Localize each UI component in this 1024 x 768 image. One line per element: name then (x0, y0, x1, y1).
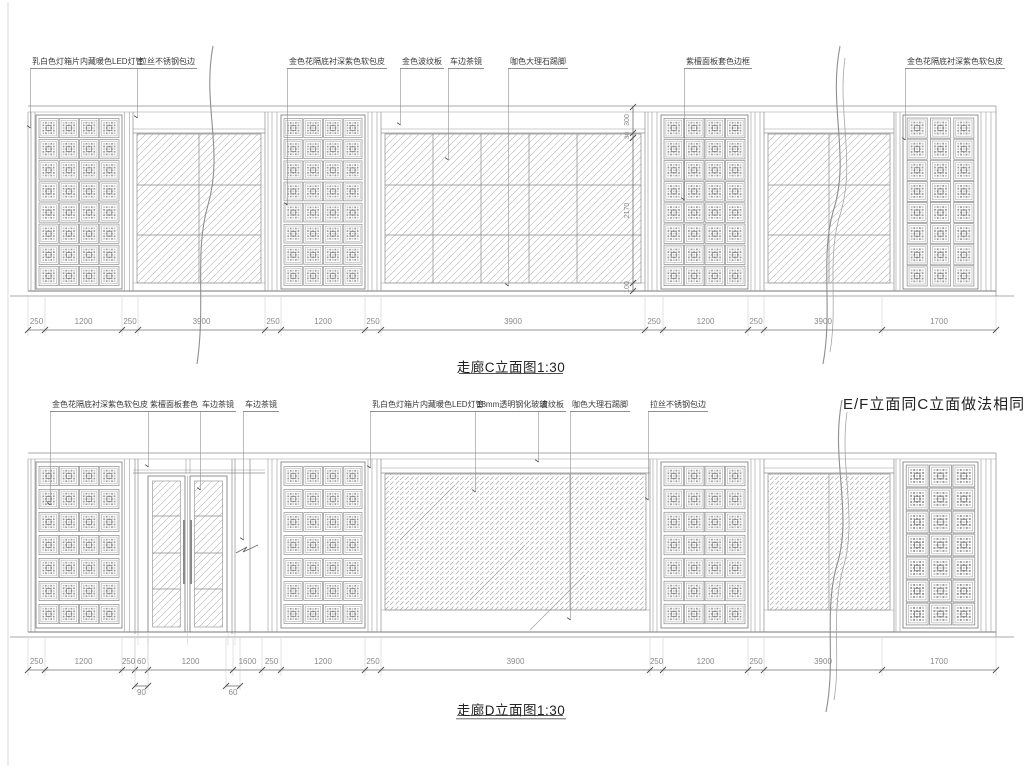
glass-panel (381, 112, 645, 291)
break-mark (236, 545, 258, 553)
leader-line (397, 69, 400, 125)
dimension-row (25, 297, 999, 336)
leader-line (197, 412, 200, 490)
drawing-sheet: 300302170100 走廊C立面图1:30 走廊D立面图1:30 E/F立面… (0, 0, 1024, 768)
vertical-dim-value: 300 (624, 114, 631, 126)
elevation-linework: 300302170100 (0, 0, 1024, 768)
lattice-panel (281, 115, 365, 289)
lattice-panel (903, 462, 978, 628)
door-handle (183, 520, 185, 584)
leader-line (27, 69, 30, 128)
leader-line (134, 69, 137, 118)
elevation-d (10, 400, 1014, 719)
door-handle (190, 520, 192, 584)
glass-panel (133, 112, 265, 291)
lattice-panel (36, 115, 122, 289)
elevation-c: 300302170100 (8, 2, 1014, 766)
glass-panel (381, 459, 650, 632)
dimension-row (25, 638, 999, 676)
double-door (133, 459, 265, 645)
vertical-dim-value: 2170 (624, 203, 631, 219)
leader-line (367, 412, 370, 468)
lattice-panel (661, 462, 748, 628)
lattice-panel (903, 115, 978, 289)
vertical-dim-value: 100 (624, 281, 631, 293)
sub-dimension-row (132, 638, 243, 690)
leader-line (535, 412, 538, 462)
lattice-panel (281, 462, 365, 628)
vertical-dim-value: 30 (624, 132, 631, 140)
glass-panel (764, 459, 894, 632)
leader-line (240, 412, 243, 540)
lattice-panel (661, 115, 748, 289)
glass-panel (764, 112, 894, 291)
lattice-panel (36, 462, 122, 628)
